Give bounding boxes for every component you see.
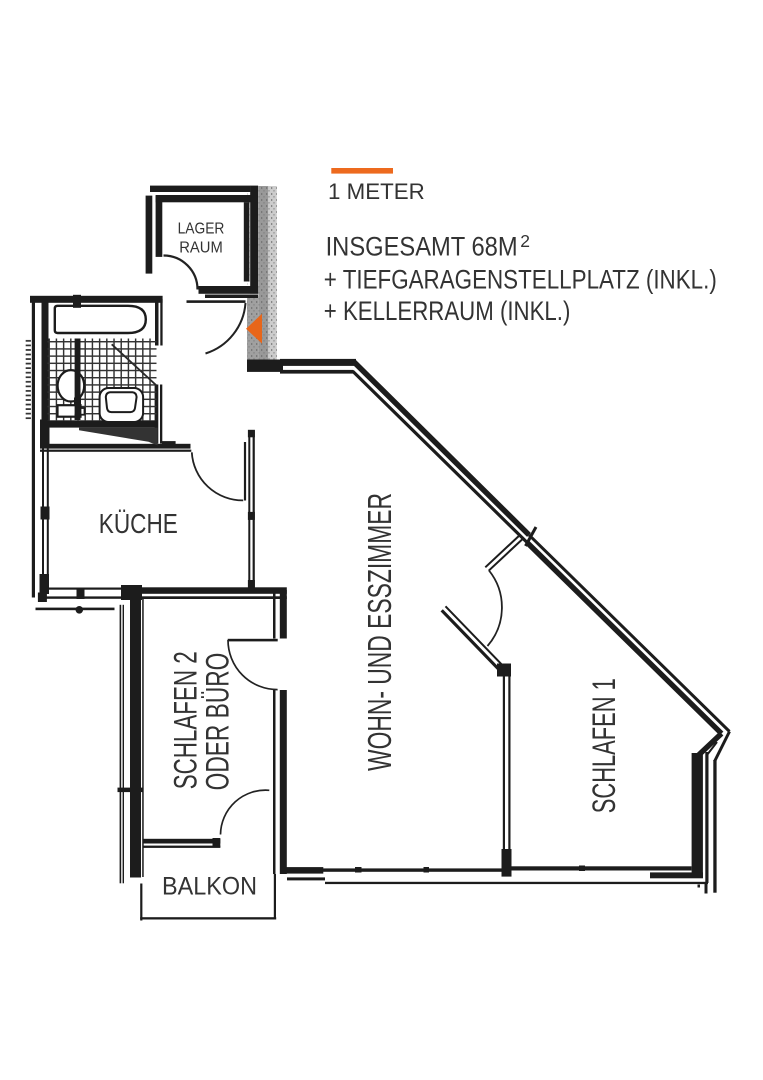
svg-text:WOHN- UND ESSZIMMER: WOHN- UND ESSZIMMER	[361, 493, 398, 771]
svg-text:RAUM: RAUM	[179, 239, 223, 256]
svg-text:KÜCHE: KÜCHE	[99, 508, 178, 539]
svg-text:ODER BÜRO: ODER BÜRO	[200, 653, 236, 791]
svg-text:INSGESAMT 68M: INSGESAMT 68M	[326, 232, 518, 262]
svg-text:+ TIEFGARAGENSTELLPLATZ (INKL.: + TIEFGARAGENSTELLPLATZ (INKL.)	[324, 264, 717, 294]
svg-text:+ KELLERRAUM (INKL.): + KELLERRAUM (INKL.)	[324, 296, 571, 326]
svg-text:SCHLAFEN 2: SCHLAFEN 2	[168, 651, 204, 789]
svg-text:LAGER: LAGER	[178, 221, 225, 238]
svg-text:1 METER: 1 METER	[328, 179, 425, 204]
svg-text:SCHLAFEN 1: SCHLAFEN 1	[586, 678, 622, 813]
svg-text:2: 2	[520, 231, 530, 251]
svg-text:BALKON: BALKON	[162, 872, 257, 900]
